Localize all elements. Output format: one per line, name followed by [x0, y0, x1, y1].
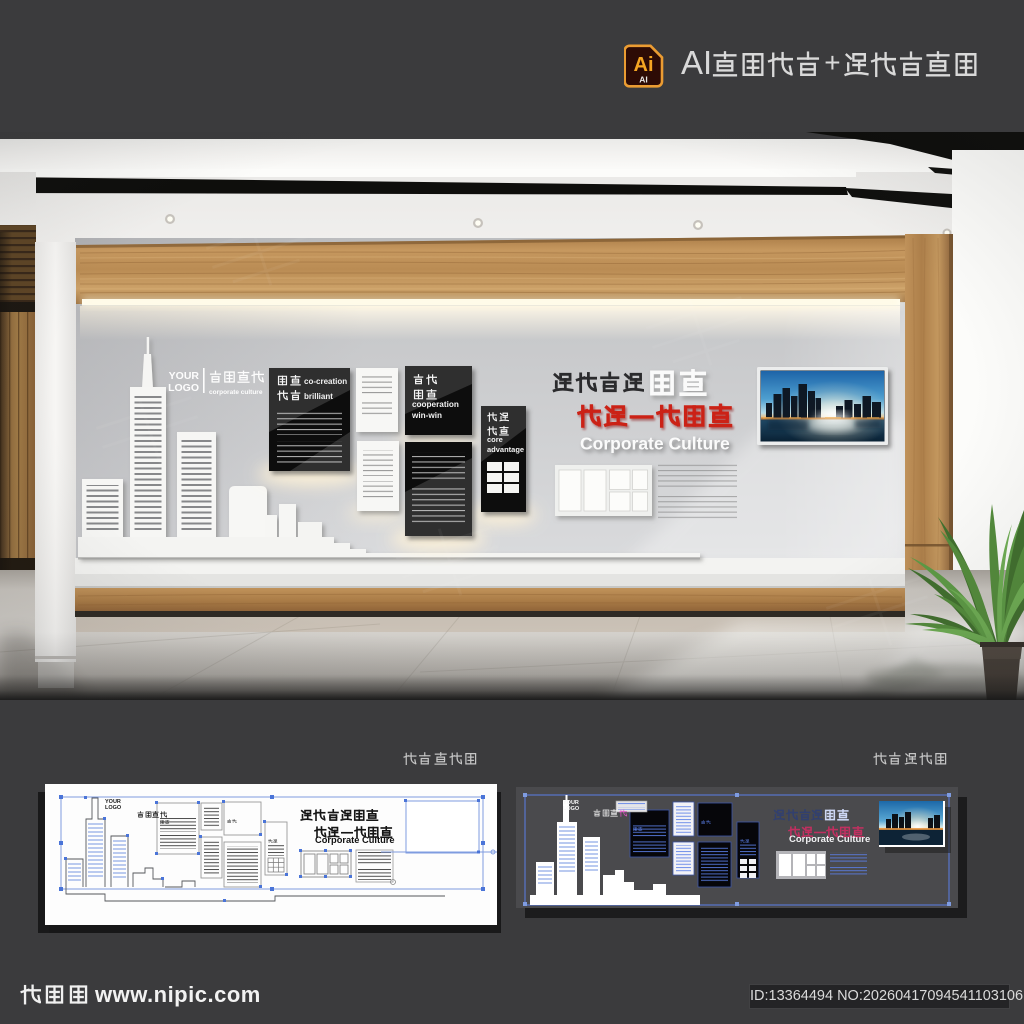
svg-text:Ai: Ai	[634, 54, 654, 76]
svg-text:AI: AI	[639, 75, 648, 85]
